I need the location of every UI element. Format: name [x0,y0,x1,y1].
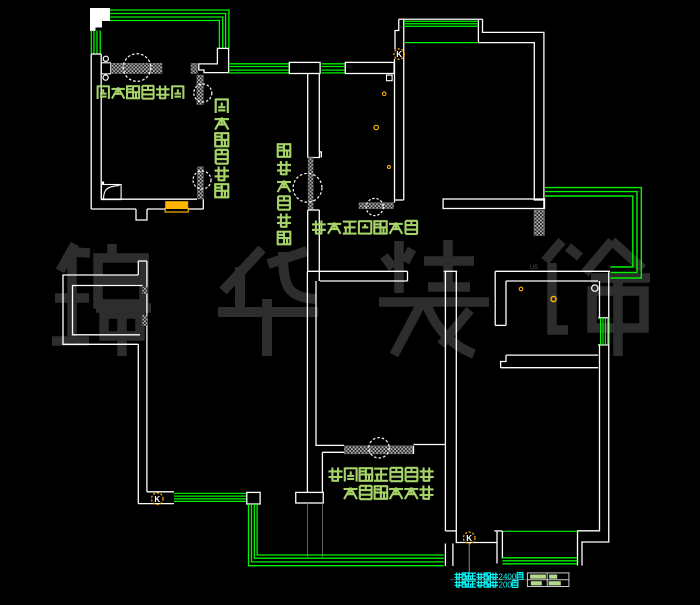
svg-text:K: K [466,534,472,543]
svg-text:K: K [396,50,402,59]
svg-text:200: 200 [499,580,513,589]
svg-text:U5: U5 [530,265,538,271]
svg-text:K: K [154,495,160,504]
